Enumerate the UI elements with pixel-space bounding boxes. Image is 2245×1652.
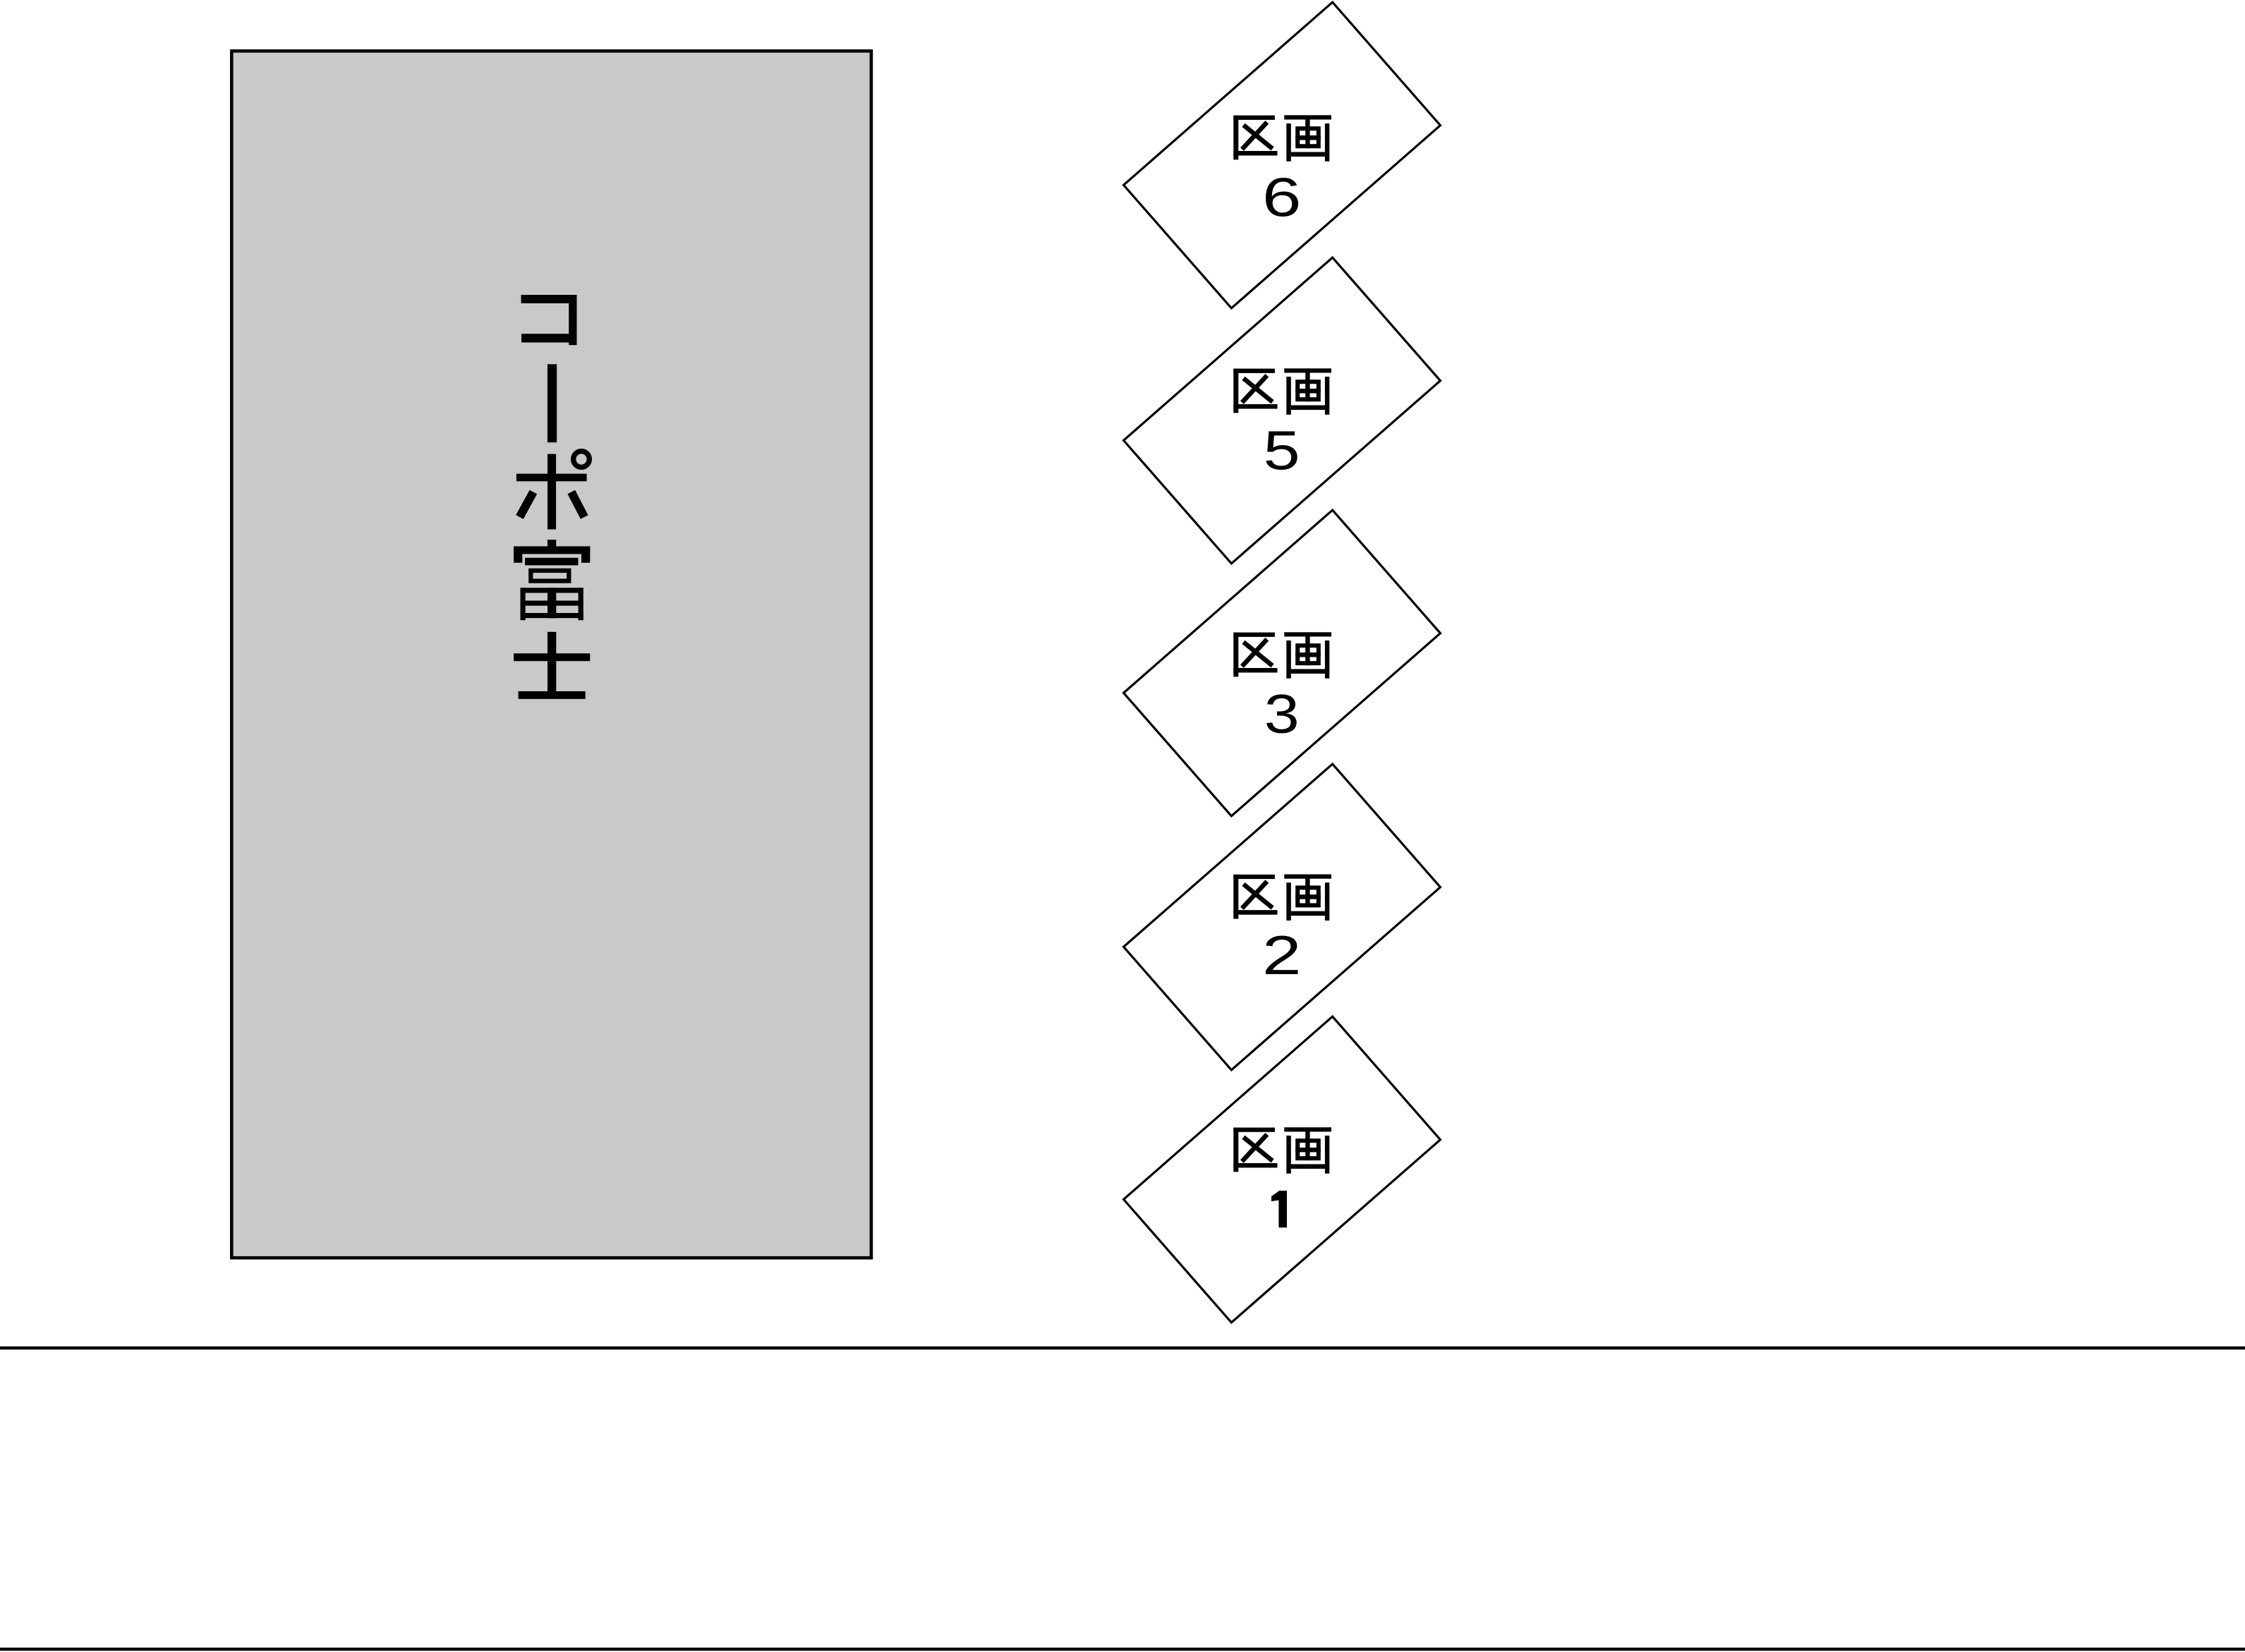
svg-text:5: 5 <box>1264 420 1300 481</box>
svg-text:6: 6 <box>1262 166 1302 227</box>
svg-text:2: 2 <box>1262 924 1302 985</box>
svg-text:3: 3 <box>1264 683 1300 744</box>
